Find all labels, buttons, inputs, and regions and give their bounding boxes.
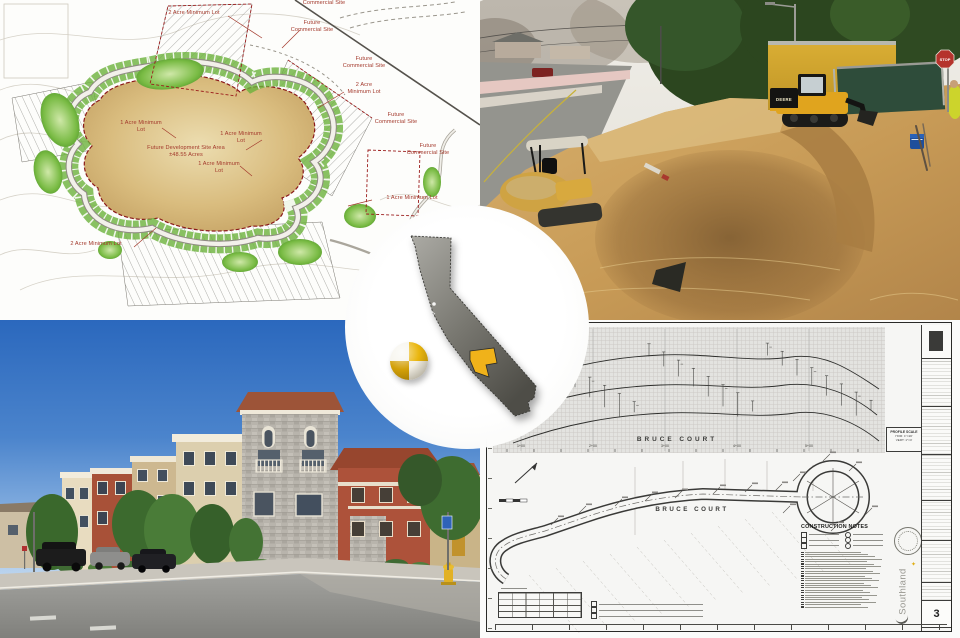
north-arrow: [515, 463, 537, 483]
window: [138, 470, 147, 481]
worker-head: [950, 80, 958, 88]
window: [380, 488, 392, 502]
station-labels: 1+002+003+004+005+00: [487, 444, 887, 452]
window: [352, 522, 364, 536]
station-label: 4+00: [724, 444, 750, 448]
curve-data-table: [498, 592, 582, 618]
note-row: [801, 590, 883, 591]
deco-line: [775, 484, 782, 491]
deco-line: [637, 547, 689, 607]
lake-mark: [432, 302, 436, 306]
window: [116, 482, 125, 494]
location-inset-circle: [345, 205, 589, 449]
utility-pole: [660, 26, 662, 84]
note-row: [801, 604, 883, 605]
tiny-label-mark: [682, 489, 688, 491]
window: [66, 488, 74, 499]
deco-line: [823, 454, 830, 461]
sheet-number: 3: [933, 608, 939, 620]
note-row: [801, 552, 883, 553]
blue-street-sign: [442, 516, 452, 529]
note-row: [801, 561, 883, 562]
window: [98, 512, 107, 524]
title-block-cell: [922, 407, 951, 455]
agency-logo-glyph: [929, 331, 943, 351]
title-block-column: 3: [921, 325, 951, 631]
note-row: [801, 578, 883, 579]
window: [80, 488, 88, 499]
tiny-label-mark: [856, 462, 862, 464]
tiny-label-mark: [622, 497, 628, 499]
company-logo-block: Southland ✦: [887, 560, 919, 626]
deco-line: [783, 506, 790, 513]
notes-legend: [801, 532, 883, 549]
tiny-label-mark: [652, 492, 658, 494]
window: [98, 482, 107, 494]
excavator-seat: [542, 158, 557, 174]
deco-line: [691, 533, 743, 593]
tiny-label-mark: [872, 506, 878, 508]
window: [380, 522, 392, 536]
note-row: [801, 575, 883, 576]
tiny-label-mark: [800, 472, 806, 474]
tiny-label-mark: [790, 504, 796, 506]
building-roofline: [768, 41, 896, 45]
note-row: [801, 597, 883, 598]
profile-scale-box: PROFILE SCALE HOR: 1"=20' VERT: 1"=4': [886, 427, 922, 452]
title-block-cell: [922, 455, 951, 501]
detail-keynotes-legend: [591, 601, 703, 619]
note-row: [801, 571, 883, 572]
window: [184, 482, 194, 495]
tiny-label-mark: [782, 482, 788, 484]
excavation-pit: [595, 150, 865, 320]
note-row: [801, 585, 883, 586]
loader-brand-text: DEERE: [776, 97, 792, 102]
development-site-area: [84, 75, 315, 231]
notes-text-lines: [801, 552, 883, 608]
california-outline: [411, 236, 536, 416]
window: [408, 522, 420, 536]
title-block-cell: [922, 359, 951, 407]
california-map-icon: [398, 228, 548, 433]
tower-arched-window: [265, 430, 273, 447]
small-red-sign: [22, 546, 27, 551]
window: [226, 452, 236, 465]
construction-notes-title: CONSTRUCTION NOTES: [801, 524, 883, 530]
note-row: [801, 580, 883, 581]
window: [80, 516, 88, 527]
parked-red-car: [532, 68, 553, 77]
tiny-label-mark: [752, 483, 758, 485]
engineer-seal: [894, 527, 922, 555]
note-row: [801, 566, 883, 567]
window: [352, 488, 364, 502]
construction-notes-block: CONSTRUCTION NOTES: [801, 524, 883, 609]
black-sedan: [132, 554, 176, 569]
title-block-cell: [922, 501, 951, 541]
note-row: [801, 559, 883, 560]
profile-street-name: BRUCE COURT: [607, 436, 747, 443]
deco-line: [745, 519, 797, 579]
green-screen-fence: [833, 57, 946, 117]
deco-line: [718, 526, 770, 586]
plan-inset-box: [4, 4, 68, 78]
note-row: [801, 583, 883, 584]
development-collage: 2 Acre Minimum LotFuture Commercial Site…: [0, 0, 960, 638]
plan-street-name: BRUCE COURT: [637, 506, 747, 513]
window: [205, 482, 215, 495]
tiny-label-mark: [720, 485, 726, 487]
title-block-cell: [922, 541, 951, 583]
station-label: 1+00: [508, 444, 534, 448]
tower-lower-window: [254, 492, 274, 516]
note-row: [801, 592, 883, 593]
stop-sign-text: STOP: [940, 57, 951, 62]
station-label: 2+00: [580, 444, 606, 448]
tower-tile-cap: [236, 392, 344, 412]
graphic-scale-bar: [499, 499, 527, 502]
note-row: [801, 573, 883, 574]
title-block-logo-cell: [922, 325, 951, 359]
note-row: [801, 587, 883, 588]
window: [158, 470, 167, 481]
title-block-cell: [922, 583, 951, 601]
note-row: [801, 606, 883, 607]
note-row: [801, 554, 883, 555]
note-row: [801, 563, 883, 564]
window: [226, 482, 236, 495]
star-icon: ✦: [911, 561, 916, 568]
station-label: 3+00: [652, 444, 678, 448]
profile-scale-vert: VERT: 1"=4': [887, 438, 921, 442]
station-label: 5+00: [796, 444, 822, 448]
window: [184, 452, 194, 465]
survey-target-icon: [390, 342, 428, 380]
note-row: [801, 568, 883, 569]
note-row: [801, 595, 883, 596]
note-row: [801, 556, 883, 557]
note-row: [801, 599, 883, 600]
tiny-label-mark: [838, 522, 844, 524]
bottom-ruler-ticks: [495, 624, 947, 630]
window: [205, 452, 215, 465]
deco-line: [793, 474, 800, 481]
tower-balcony-left: [256, 460, 282, 472]
note-row: [801, 602, 883, 603]
tiny-label-mark: [586, 504, 592, 506]
deco-line: [664, 540, 716, 600]
tiny-label-mark: [558, 516, 564, 518]
tower-balcony-right: [300, 460, 326, 472]
